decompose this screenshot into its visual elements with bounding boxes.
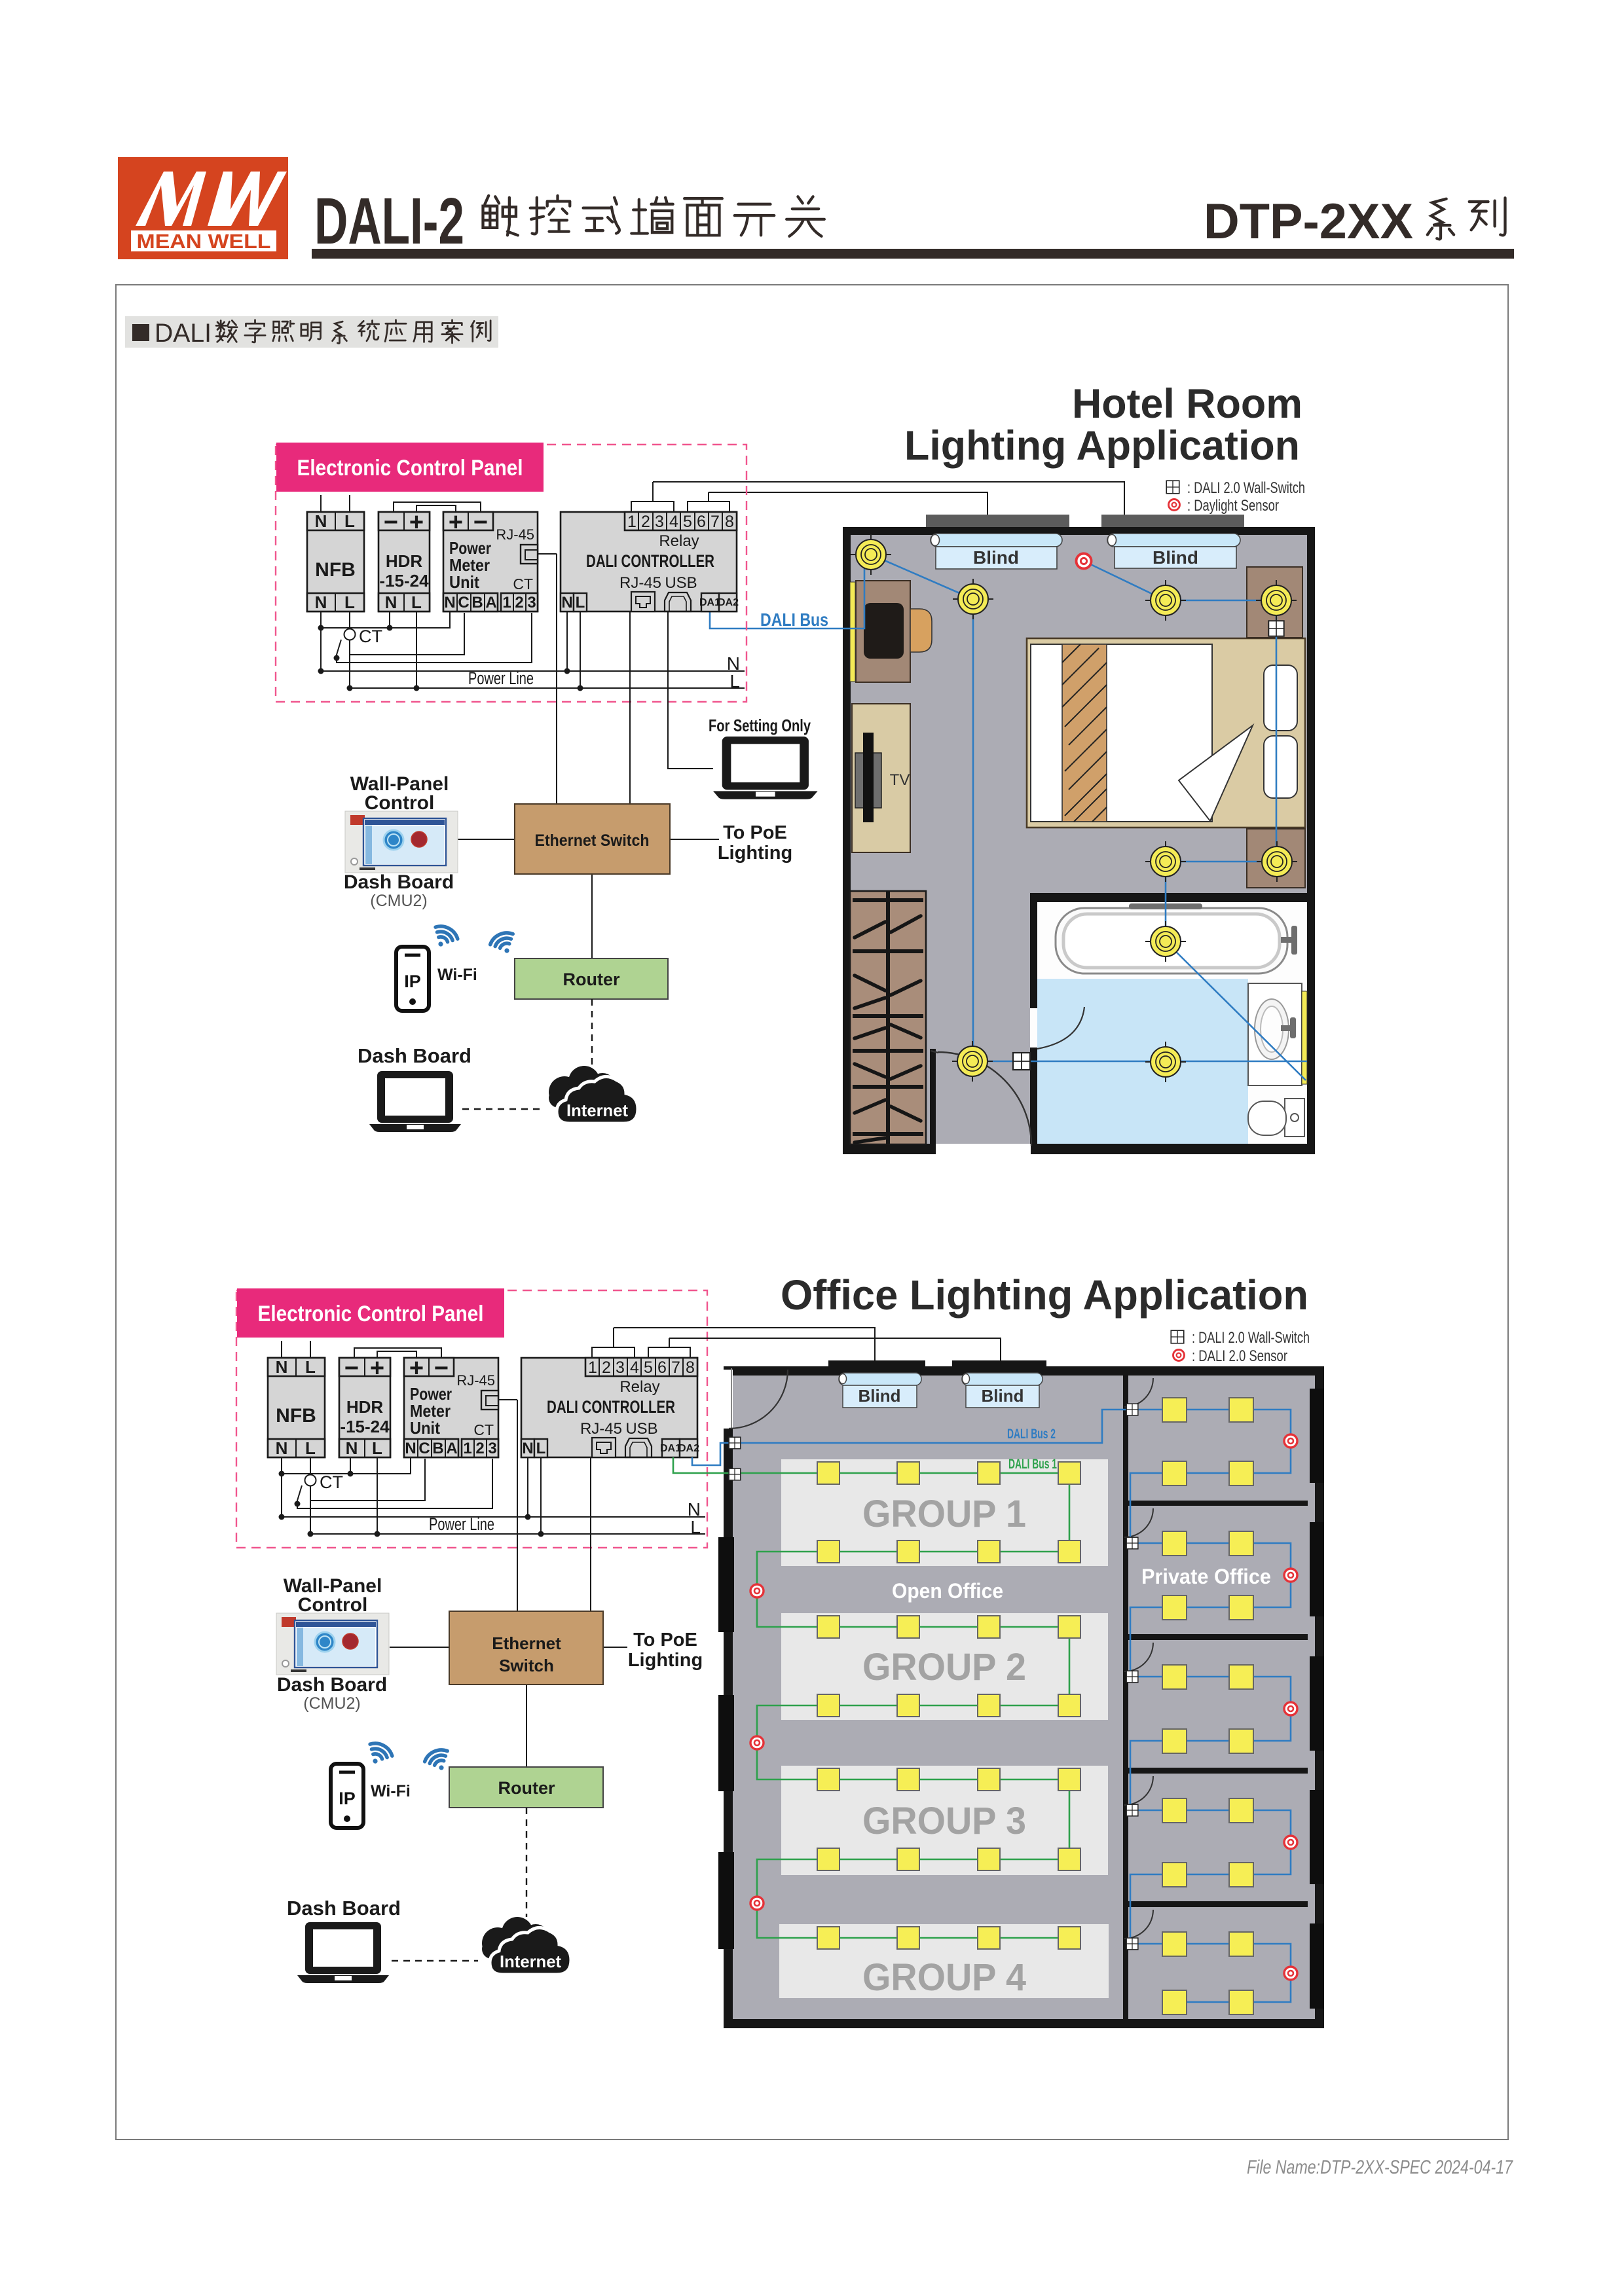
svg-text:Router: Router (498, 1778, 555, 1798)
svg-text:Router: Router (563, 970, 620, 989)
svg-text:: DALI 2.0 Sensor: : DALI 2.0 Sensor (1192, 1347, 1287, 1365)
svg-text:Ethernet Switch: Ethernet Switch (535, 831, 650, 850)
svg-text:Control: Control (365, 792, 435, 814)
svg-text:Wi-Fi: Wi-Fi (371, 1782, 411, 1800)
svg-text:For Setting Only: For Setting Only (709, 716, 811, 735)
svg-text:Lighting: Lighting (718, 843, 792, 864)
svg-text:File Name:DTP-2XX-SPEC 2024-0: File Name:DTP-2XX-SPEC 2024-04-17 (1247, 2157, 1513, 2178)
svg-text:GROUP 1: GROUP 1 (862, 1493, 1026, 1535)
svg-text:Blind: Blind (1153, 547, 1198, 568)
svg-text:Hotel Room: Hotel Room (1072, 381, 1302, 427)
svg-text:Dash Board: Dash Board (287, 1897, 401, 1920)
svg-text:Switch: Switch (499, 1656, 554, 1675)
svg-text:DALI Bus: DALI Bus (760, 610, 828, 630)
svg-text:GROUP 3: GROUP 3 (862, 1800, 1026, 1842)
svg-text:(CMU2): (CMU2) (303, 1694, 361, 1713)
svg-text:To PoE: To PoE (633, 1630, 697, 1650)
svg-text:Blind: Blind (858, 1386, 901, 1406)
svg-text:: DALI 2.0 Wall-Switch: : DALI 2.0 Wall-Switch (1187, 479, 1305, 497)
svg-text:Private Office: Private Office (1141, 1565, 1271, 1588)
svg-text:DALI: DALI (155, 319, 212, 348)
svg-text:DALI-2: DALI-2 (314, 185, 464, 258)
svg-text:TV: TV (890, 771, 910, 789)
svg-text:Control: Control (298, 1594, 368, 1616)
svg-text:: DALI 2.0 Wall-Switch: : DALI 2.0 Wall-Switch (1192, 1329, 1310, 1347)
svg-text:(CMU2): (CMU2) (370, 892, 428, 910)
svg-text:Dash Board: Dash Board (358, 1044, 471, 1067)
svg-text:Blind: Blind (973, 547, 1019, 568)
svg-text:Dash Board: Dash Board (277, 1674, 387, 1696)
svg-text:Ethernet: Ethernet (492, 1633, 561, 1653)
svg-text:To PoE: To PoE (723, 822, 787, 843)
svg-text:DALI Bus 1: DALI Bus 1 (1008, 1457, 1057, 1472)
svg-text:MEAN WELL: MEAN WELL (137, 230, 271, 253)
svg-text:GROUP 4: GROUP 4 (862, 1956, 1026, 1999)
svg-text:DALI Bus 2: DALI Bus 2 (1007, 1427, 1056, 1442)
svg-text:Dash Board: Dash Board (344, 871, 454, 893)
svg-text:Blind: Blind (982, 1386, 1024, 1406)
svg-text:Open Office: Open Office (892, 1579, 1003, 1603)
svg-text:Wi-Fi: Wi-Fi (437, 966, 477, 984)
svg-text:Lighting Application: Lighting Application (904, 423, 1300, 469)
svg-text:: Daylight Sensor: : Daylight Sensor (1187, 497, 1279, 515)
svg-text:Office Lighting Application: Office Lighting Application (781, 1271, 1308, 1319)
svg-text:Lighting: Lighting (628, 1650, 703, 1671)
svg-text:GROUP 2: GROUP 2 (862, 1646, 1026, 1688)
svg-text:DTP-2XX: DTP-2XX (1204, 194, 1413, 249)
